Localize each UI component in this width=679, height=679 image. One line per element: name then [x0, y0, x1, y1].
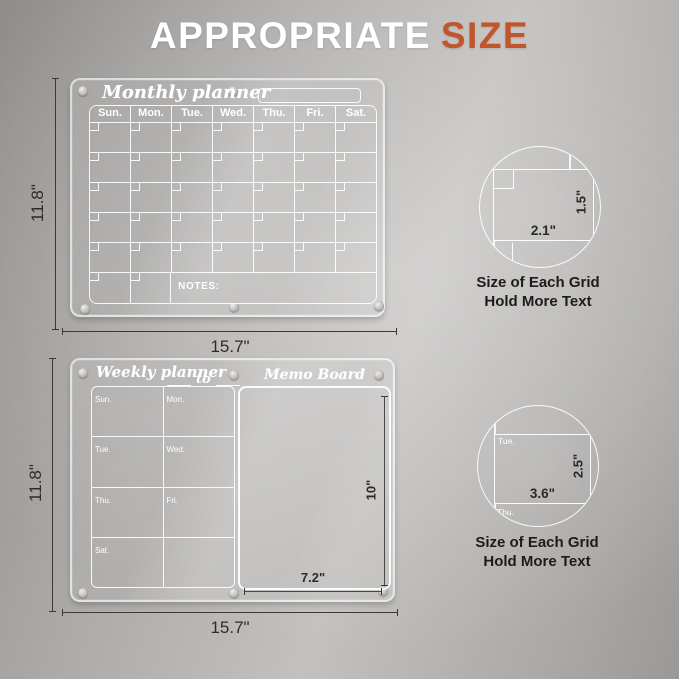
title-word-size: SIZE	[441, 15, 529, 56]
date-number-box	[172, 183, 181, 191]
date-number-box	[295, 123, 304, 131]
caption-line: Hold More Text	[448, 292, 628, 311]
weekly-day-label: Mon.	[167, 395, 185, 404]
monthly-day-cell	[212, 243, 253, 272]
monthly-week-row	[90, 212, 376, 242]
monthly-week-row	[90, 182, 376, 212]
weekly-row: Thu. Fri.	[92, 487, 234, 537]
date-number-box	[254, 153, 263, 161]
date-range-blank-line	[216, 375, 240, 386]
date-number-box	[131, 183, 140, 191]
monthly-week-row	[90, 242, 376, 272]
monthly-day-cell	[253, 213, 294, 242]
monthly-day-cell	[212, 153, 253, 182]
monthly-day-header-row: Sun. Mon. Tue. Wed. Thu. Fri. Sat.	[90, 106, 376, 122]
day-header: Fri.	[294, 106, 335, 122]
weekly-grid-magnifier-circle: Tue. 3.6" We Thu. 2.5"	[477, 405, 599, 527]
grid-line-hint	[494, 419, 496, 434]
memo-width-dimension-line	[244, 591, 382, 592]
memo-height-dimension-line	[384, 396, 385, 586]
weekly-width-dimension-line	[62, 612, 398, 613]
grid-line-hint	[569, 154, 571, 169]
adjacent-date-box	[493, 243, 513, 262]
date-number-box	[336, 123, 345, 131]
caption-line: Hold More Text	[447, 552, 627, 571]
notes-label: NOTES:	[178, 281, 219, 292]
date-number-box	[295, 153, 304, 161]
cell-height-label: 2.5"	[571, 454, 586, 478]
day-header: Sat.	[335, 106, 376, 122]
weekly-day-cell: Mon.	[163, 387, 235, 436]
weekly-day-cell: Wed.	[163, 437, 235, 486]
date-number-box	[90, 213, 99, 221]
monthly-board-title: Monthly planner	[102, 82, 270, 103]
date-range-to-label: to	[196, 373, 211, 386]
memo-height-dimension-label: 10"	[364, 480, 379, 501]
cell-day-label: Tue.	[498, 436, 515, 446]
monthly-day-cell	[90, 273, 130, 303]
monthly-day-cell	[253, 153, 294, 182]
month-name-box	[258, 88, 361, 103]
date-number-box	[213, 183, 222, 191]
weekly-day-cell: Sun.	[92, 387, 163, 436]
monthly-day-cell	[294, 213, 335, 242]
cell-day-label-partial: We	[594, 437, 599, 447]
monthly-day-cell	[335, 213, 376, 242]
weekly-planner-board: Weekly planner to Memo Board Sun. Mon. T…	[70, 358, 395, 602]
monthly-day-cell	[90, 243, 130, 272]
monthly-day-cell	[90, 183, 130, 212]
weekly-day-cell: Sat.	[92, 538, 163, 587]
monthly-day-cell	[130, 183, 171, 212]
date-number-box	[254, 123, 263, 131]
date-number-box	[295, 243, 304, 251]
weekly-day-label: Tue.	[95, 445, 111, 454]
weekly-row: Sat.	[92, 537, 234, 587]
page-title: APPROPRIATESIZE	[0, 16, 679, 56]
magnet-dot	[80, 304, 90, 314]
weekly-inset-caption: Size of Each Grid Hold More Text	[447, 533, 627, 571]
monthly-day-cell	[253, 243, 294, 272]
day-header: Thu.	[253, 106, 294, 122]
monthly-day-cell	[171, 153, 212, 182]
screw-dot	[78, 588, 88, 598]
monthly-day-cell	[171, 183, 212, 212]
memo-width-dimension-label: 7.2"	[278, 570, 348, 585]
weekly-day-cell: Thu.	[92, 488, 163, 537]
weekly-grid: Sun. Mon. Tue. Wed. Thu. Fri. Sat.	[91, 386, 235, 588]
date-number-box	[172, 243, 181, 251]
monthly-day-cell	[171, 213, 212, 242]
monthly-day-cell	[335, 123, 376, 152]
date-number-box	[90, 123, 99, 131]
date-range-fill-in: to	[167, 373, 240, 386]
date-number-box	[172, 213, 181, 221]
monthly-day-cell	[130, 213, 171, 242]
monthly-grid-magnifier-circle: 2.1" 1.5"	[479, 146, 601, 268]
date-number-box	[213, 243, 222, 251]
weekly-row: Sun. Mon.	[92, 387, 234, 436]
date-number-box	[90, 153, 99, 161]
cell-width-label: 2.1"	[494, 223, 593, 238]
monthly-height-dimension-line	[55, 78, 56, 330]
monthly-day-cell	[212, 123, 253, 152]
date-number-box	[494, 170, 514, 189]
date-number-box	[131, 273, 140, 281]
date-number-box	[213, 123, 222, 131]
day-header: Mon.	[130, 106, 171, 122]
screw-dot	[78, 368, 88, 378]
monthly-day-cell	[90, 153, 130, 182]
date-number-box	[213, 213, 222, 221]
monthly-day-cell	[130, 123, 171, 152]
monthly-day-cell	[294, 153, 335, 182]
monthly-day-cell	[130, 243, 171, 272]
weekly-height-dimension-line	[52, 358, 53, 612]
monthly-width-dimension-label: 15.7"	[160, 337, 300, 357]
monthly-inset-caption: Size of Each Grid Hold More Text	[448, 273, 628, 311]
monthly-day-cell	[130, 153, 171, 182]
magnet-dot	[78, 86, 88, 96]
monthly-day-cell	[294, 183, 335, 212]
monthly-day-cell	[212, 183, 253, 212]
weekly-day-label: Thu.	[95, 496, 111, 505]
monthly-grid-rows	[90, 122, 376, 272]
weekly-day-label: Fri.	[167, 496, 179, 505]
day-header: Tue.	[171, 106, 212, 122]
date-number-box	[131, 153, 140, 161]
grid-line-hint	[494, 504, 496, 518]
monthly-day-cell	[253, 183, 294, 212]
monthly-day-cell	[171, 123, 212, 152]
screw-dot	[229, 588, 239, 598]
title-word-appropriate: APPROPRIATE	[150, 15, 431, 56]
monthly-day-cell	[294, 123, 335, 152]
weekly-row: Tue. Wed.	[92, 436, 234, 486]
date-number-box	[254, 243, 263, 251]
weekly-day-cell	[163, 538, 235, 587]
day-header: Sun.	[90, 106, 130, 122]
caption-line: Size of Each Grid	[447, 533, 627, 552]
day-header: Wed.	[212, 106, 253, 122]
monthly-notes-row: NOTES:	[90, 272, 376, 303]
weekly-day-cell: Fri.	[163, 488, 235, 537]
cell-day-label: Thu.	[497, 507, 514, 517]
memo-board-title: Memo Board	[238, 367, 391, 383]
magnet-dot	[374, 301, 384, 311]
date-number-box	[131, 213, 140, 221]
monthly-day-cell	[253, 123, 294, 152]
date-number-box	[90, 273, 99, 281]
date-number-box	[90, 243, 99, 251]
weekly-day-label: Wed.	[167, 445, 186, 454]
date-number-box	[90, 183, 99, 191]
product-size-infographic: APPROPRIATESIZE Monthly planner Sun. Mon…	[0, 0, 679, 679]
date-number-box	[131, 123, 140, 131]
cell-height-label: 1.5"	[574, 190, 589, 214]
date-number-box	[254, 183, 263, 191]
monthly-day-cell	[212, 213, 253, 242]
date-number-box	[336, 153, 345, 161]
weekly-height-dimension-label: 11.8"	[26, 464, 46, 502]
weekly-day-label: Sat.	[95, 546, 109, 555]
monthly-grid: Sun. Mon. Tue. Wed. Thu. Fri. Sat. NOTES…	[89, 105, 377, 304]
date-number-box	[295, 183, 304, 191]
notes-cell: NOTES:	[170, 273, 376, 303]
date-number-box	[336, 213, 345, 221]
weekly-day-label: Sun.	[95, 395, 111, 404]
weekly-width-dimension-label: 15.7"	[160, 618, 300, 638]
monthly-planner-board: Monthly planner Sun. Mon. Tue. Wed. Thu.…	[70, 78, 385, 317]
cell-width-label: 3.6"	[495, 486, 590, 501]
date-number-box	[295, 213, 304, 221]
date-number-box	[336, 243, 345, 251]
monthly-height-dimension-label: 11.8"	[28, 184, 48, 222]
monthly-day-cell	[130, 273, 171, 303]
date-number-box	[131, 243, 140, 251]
monthly-day-cell	[294, 243, 335, 272]
date-number-box	[213, 153, 222, 161]
monthly-day-cell	[90, 123, 130, 152]
date-number-box	[172, 123, 181, 131]
monthly-day-cell	[90, 213, 130, 242]
date-number-box	[254, 213, 263, 221]
date-number-box	[336, 183, 345, 191]
monthly-day-cell	[335, 243, 376, 272]
monthly-width-dimension-line	[62, 331, 397, 332]
monthly-day-cell	[335, 153, 376, 182]
date-range-blank-line	[167, 375, 191, 386]
weekly-day-cell: Tue.	[92, 437, 163, 486]
date-number-box	[172, 153, 181, 161]
monthly-week-row	[90, 152, 376, 182]
monthly-week-row	[90, 122, 376, 152]
caption-line: Size of Each Grid	[448, 273, 628, 292]
monthly-day-cell	[335, 183, 376, 212]
monthly-day-cell	[171, 243, 212, 272]
